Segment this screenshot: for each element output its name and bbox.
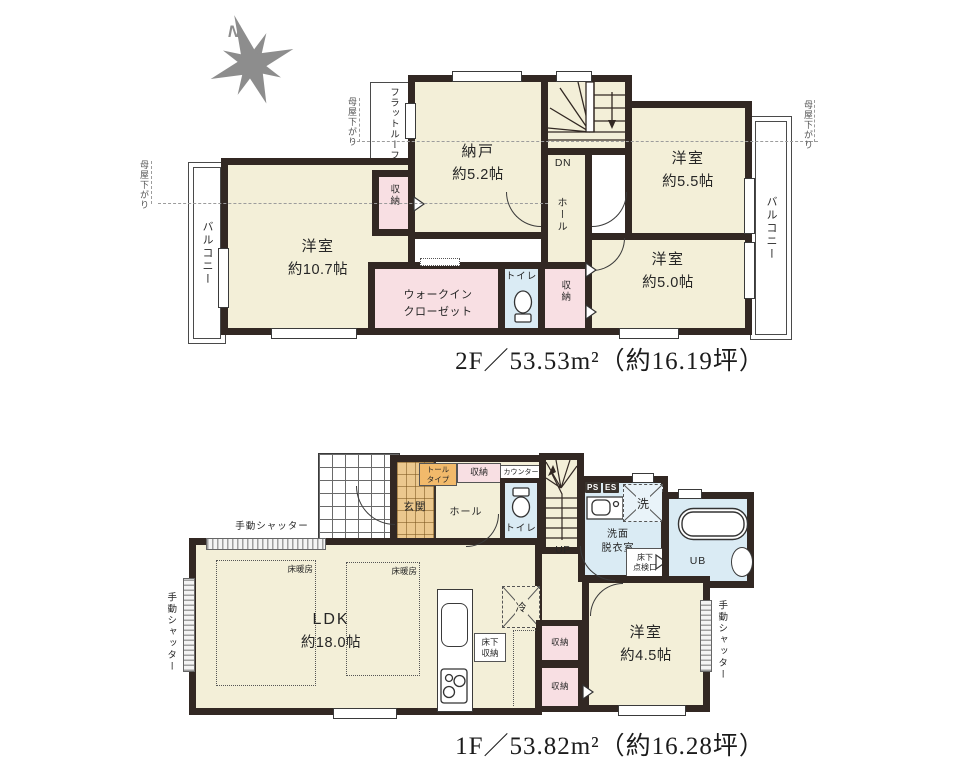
entry-closet: 収納 [457, 463, 501, 483]
balcony-right-label: バルコニー [751, 117, 791, 339]
room-name: 洋室 [671, 150, 704, 167]
room-1f-bath [662, 492, 754, 588]
room-label-wic: ウォークイン クローゼット [382, 287, 494, 320]
room-label-ldk: LDK 約18.0帖 [276, 608, 386, 655]
tall-cabinet-label: トール タイプ [419, 463, 457, 486]
room-name: 洋室 [651, 251, 684, 268]
balcony-right: バルコニー [750, 116, 792, 340]
refrigerator-label: 冷 [515, 599, 528, 615]
room-name: 洋室 [301, 238, 334, 255]
window [744, 242, 755, 299]
window [218, 248, 229, 308]
room-size: 約4.5帖 [620, 648, 672, 664]
window [333, 708, 397, 719]
moya-sagari-label: 母屋下がり [346, 97, 359, 147]
kitchen-sink [441, 603, 468, 647]
closet-door-mark [582, 684, 594, 700]
north-compass: N [192, 8, 312, 108]
pipe-space-label: PS [585, 482, 601, 493]
staircase-down-icon [548, 82, 625, 148]
vanity-sink-icon [586, 496, 624, 520]
closet-door-mark [585, 262, 597, 278]
room-label-toilet-2f: トイレ [498, 270, 545, 284]
staircase-up-icon [546, 460, 577, 547]
refrigerator-space: 冷 [502, 586, 540, 628]
window [619, 328, 679, 339]
window [678, 489, 702, 499]
stove-icon [440, 668, 468, 704]
closet-label: 収納 [386, 184, 400, 207]
closet-label: 収納 [536, 636, 584, 649]
window [452, 71, 522, 82]
moya-sagari-label: 母屋下がり [802, 100, 815, 150]
window [271, 328, 357, 339]
room-size: 約10.7帖 [288, 262, 348, 278]
manual-shutter-label: 手動シャッター [163, 592, 177, 673]
room-label-ub: UB [678, 554, 718, 570]
room-label-yoshitsu-55: 洋室 約5.5帖 [628, 148, 748, 193]
manual-shutter-label: 手動シャッター [714, 600, 728, 681]
room-size: 約5.2帖 [452, 167, 504, 183]
room-label-nando: 納戸 約5.2帖 [418, 141, 538, 186]
window [632, 473, 654, 483]
room-name: LDK [312, 611, 349, 628]
shutter-strip [183, 578, 195, 672]
shutter-strip [700, 600, 712, 672]
stairs-dn-label: DN [546, 156, 580, 172]
flat-roof-label: フラットルーフ [386, 87, 400, 161]
door-arc [592, 192, 627, 227]
electric-space-label: ES [603, 482, 619, 493]
room-size: 約5.0帖 [642, 275, 694, 291]
window [405, 103, 416, 139]
eave-line [158, 203, 548, 204]
wic-opening [420, 258, 460, 266]
bathtub-icon [677, 507, 749, 541]
stairs-up-label: UP [548, 543, 578, 559]
floor-heating-label: 床暖房 [391, 565, 417, 577]
floor-2f-caption: 2F／53.53m²（約16.19坪） [445, 341, 775, 377]
room-label-hall-2f: ホール [553, 197, 568, 233]
compass-star-icon [192, 8, 312, 108]
room-label-yoshitsu-45: 洋室 約4.5帖 [586, 622, 706, 667]
closet-door-mark [413, 196, 425, 212]
closet-label: 収納 [536, 680, 584, 693]
eave-line [359, 98, 360, 142]
window [556, 71, 592, 82]
toilet-icon [512, 289, 534, 323]
underfloor-storage-label: 床下 収納 [474, 633, 506, 662]
room-label-genkan: 玄関 [396, 500, 434, 516]
room-name: 洋室 [629, 624, 662, 641]
toilet-icon [510, 487, 532, 519]
room-label-yoshitsu-50: 洋室 約5.0帖 [608, 249, 728, 294]
bath-stool-icon [731, 547, 753, 577]
room-label-toilet-1f: トイレ [500, 522, 542, 536]
manual-shutter-label: 手動シャッター [222, 520, 322, 534]
closet-door-mark [585, 304, 597, 320]
room-label-yoshitsu-107: 洋室 約10.7帖 [258, 236, 378, 281]
eave-line [151, 161, 152, 204]
moya-sagari-label: 母屋下がり [138, 160, 151, 210]
washer-space: 洗 [623, 484, 663, 522]
shutter-strip [206, 538, 326, 550]
room-size: 約5.5帖 [662, 174, 714, 190]
window [618, 705, 686, 716]
room-size: 約18.0帖 [301, 635, 361, 651]
compass-north-label: N [228, 22, 240, 42]
floor-1f-caption: 1F／53.82m²（約16.28坪） [445, 726, 775, 762]
room-name: 納戸 [461, 143, 494, 160]
floor-plan-page: { "compass": { "label": "N" }, "colors":… [0, 0, 961, 769]
washer-label: 洗 [636, 495, 650, 512]
closet-label: 収納 [557, 280, 571, 303]
floor-heating-label: 床暖房 [287, 563, 313, 575]
room-2f-stairs [541, 75, 632, 155]
kitchen-zone-line [513, 630, 514, 706]
